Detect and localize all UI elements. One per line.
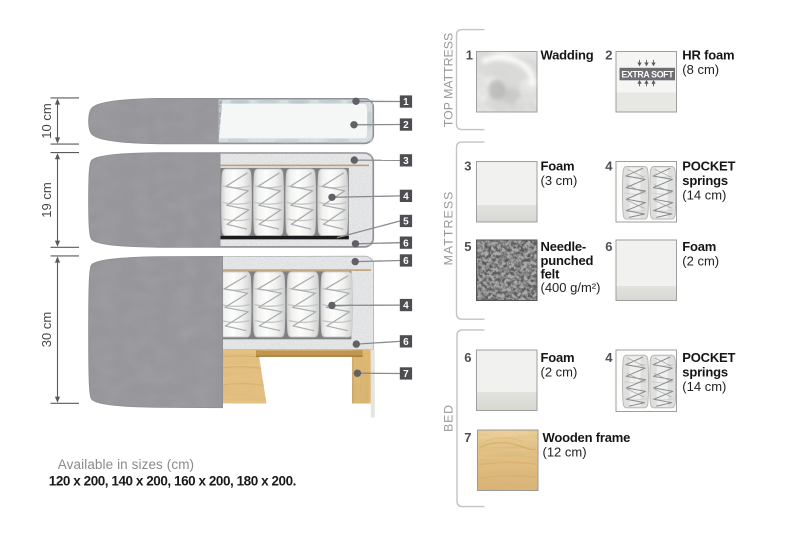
svg-text:POCKET: POCKET [682,159,735,174]
svg-text:HR foam: HR foam [682,48,734,63]
svg-text:7: 7 [403,369,409,380]
svg-text:3: 3 [464,159,471,174]
svg-text:(2 cm): (2 cm) [541,365,578,380]
svg-text:Wadding: Wadding [541,48,594,63]
svg-text:6: 6 [403,238,409,249]
svg-text:2: 2 [605,48,612,63]
svg-text:5: 5 [464,239,471,254]
svg-text:6: 6 [403,337,409,348]
svg-text:Foam: Foam [682,239,716,254]
svg-text:1: 1 [466,48,473,63]
svg-text:TOP MATTRESS: TOP MATTRESS [442,33,456,127]
svg-text:BED: BED [442,404,456,432]
svg-text:6: 6 [403,256,409,267]
svg-text:120 x 200, 140 x 200, 160 x 20: 120 x 200, 140 x 200, 160 x 200, 180 x 2… [49,474,296,489]
svg-text:4: 4 [403,301,409,312]
svg-text:4: 4 [605,350,613,365]
svg-text:2: 2 [403,120,409,131]
svg-text:EXTRA SOFT: EXTRA SOFT [621,70,674,80]
svg-text:(400 g/m²): (400 g/m²) [541,280,601,295]
svg-text:19 cm: 19 cm [39,182,54,217]
svg-text:(14 cm): (14 cm) [682,188,726,203]
svg-text:Foam: Foam [541,350,575,365]
svg-text:1: 1 [403,97,409,108]
svg-text:(2 cm): (2 cm) [682,254,719,269]
svg-text:(3 cm): (3 cm) [541,173,578,188]
svg-text:10 cm: 10 cm [39,103,54,138]
svg-text:4: 4 [605,159,613,174]
svg-text:MATTRESS: MATTRESS [442,191,456,266]
svg-text:30 cm: 30 cm [39,312,54,347]
svg-text:springs: springs [682,173,728,188]
svg-text:(14 cm): (14 cm) [682,379,726,394]
svg-text:3: 3 [403,156,409,167]
svg-text:Wooden frame: Wooden frame [543,430,631,445]
svg-text:6: 6 [605,239,612,254]
svg-text:5: 5 [403,217,409,228]
svg-text:Foam: Foam [541,159,575,174]
svg-text:POCKET: POCKET [682,350,735,365]
svg-text:felt: felt [541,266,561,281]
svg-text:(8 cm): (8 cm) [682,62,719,77]
svg-text:4: 4 [403,192,409,203]
svg-text:(12 cm): (12 cm) [543,445,587,460]
svg-text:6: 6 [464,350,471,365]
svg-text:Available in sizes (cm): Available in sizes (cm) [58,457,194,472]
svg-text:7: 7 [464,430,471,445]
svg-text:springs: springs [682,365,728,380]
